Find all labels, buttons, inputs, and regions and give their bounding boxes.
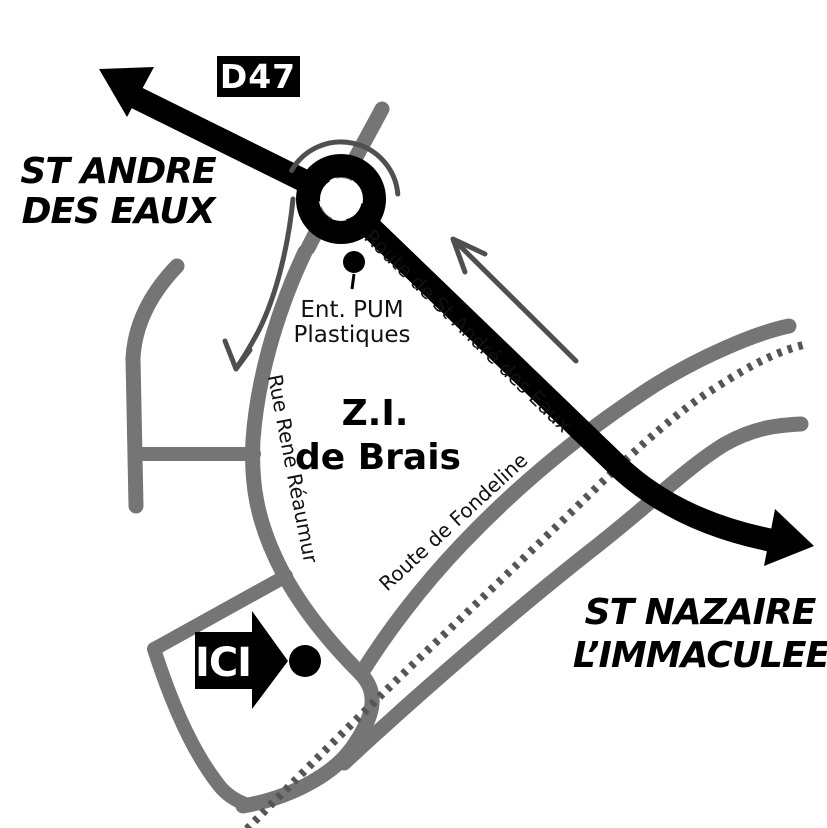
secondary-roads [133, 109, 801, 806]
ent-pum-leader-line [352, 274, 354, 289]
ent-pum-label-line2: Plastiques [293, 322, 410, 348]
st-nazaire-label-line2: L’IMMACULEE [573, 635, 827, 676]
d47-arrowhead-southeast [764, 509, 814, 566]
destination-dot [289, 645, 321, 677]
zi-de-brais-label-line1: Z.I. [342, 393, 409, 434]
ici-marker-label: ICI [195, 640, 251, 686]
ici-marker-arrow [252, 611, 288, 709]
st-andre-label-line1: ST ANDRE [20, 151, 217, 192]
d47-badge-label: D47 [220, 57, 296, 96]
ent-pum-label-line1: Ent. PUM [300, 297, 403, 323]
st-andre-label-line2: DES EAUX [22, 191, 218, 232]
d47-badge: D47 [217, 56, 300, 97]
street-labels: Route de St André des Eaux Rue René Réau… [263, 225, 577, 596]
roundabout-center [320, 178, 362, 220]
access-map: D47 Ent. PUM Plastiques ICI ST ANDRE DES… [0, 0, 827, 828]
ici-marker: ICI [195, 611, 321, 709]
zi-de-brais-label-line2: de Brais [295, 437, 461, 478]
st-nazaire-label-line1: ST NAZAIRE [585, 592, 817, 633]
roundabout [292, 142, 398, 233]
block-road-bottom [218, 784, 248, 805]
west-access-road [133, 266, 177, 506]
railway-track [247, 345, 803, 828]
reaumur-direction-arrow [225, 199, 293, 369]
ent-pum-dot [343, 251, 365, 273]
d47-road-southeast [341, 199, 775, 541]
